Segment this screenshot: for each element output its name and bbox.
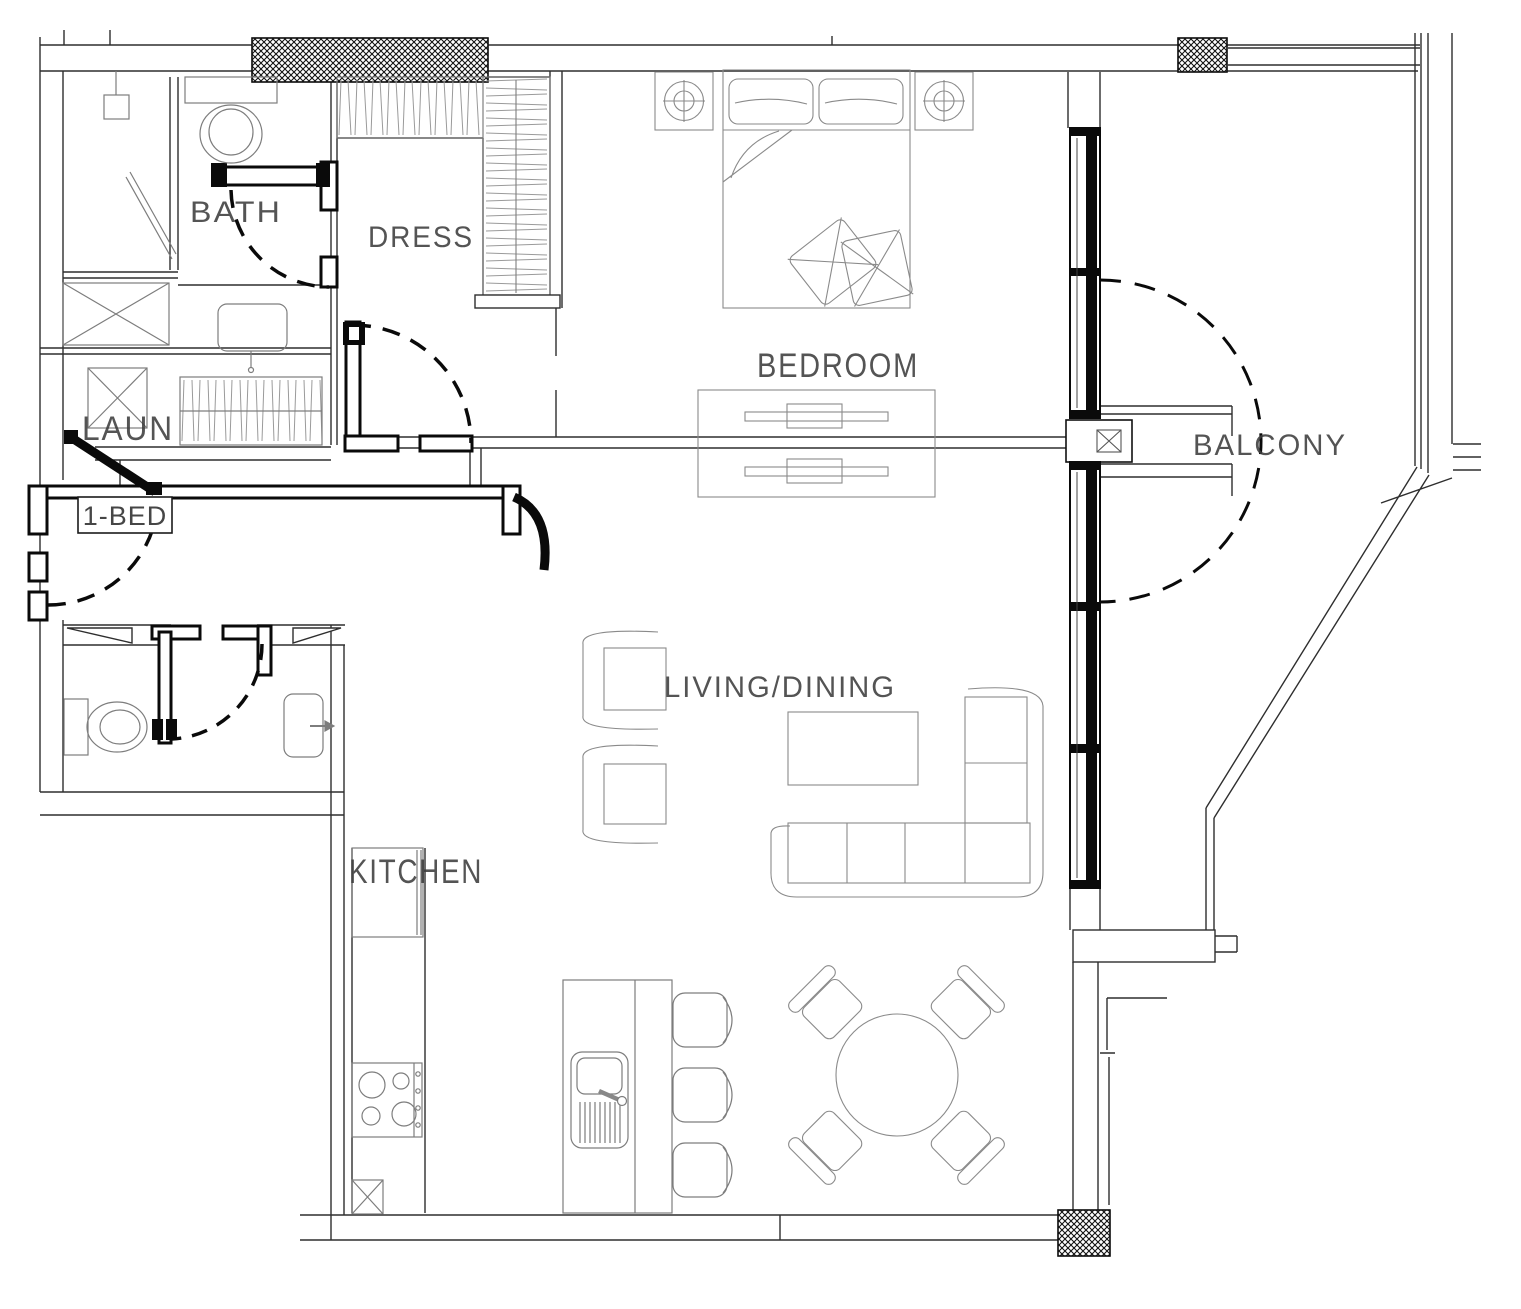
- label-unit-type: 1-BED: [83, 501, 168, 531]
- armchair-top: [583, 631, 666, 729]
- laundry-closet: [180, 377, 322, 445]
- kitchen-island: [563, 980, 672, 1213]
- bedroom-door: [343, 322, 472, 451]
- dining-chair-bl: [786, 1105, 868, 1187]
- armchair-bottom: [583, 745, 666, 843]
- balcony-glass-wall: [1066, 128, 1261, 888]
- kitchen-corner-box: [352, 1180, 383, 1214]
- dining-table: [836, 1014, 958, 1136]
- column-top-left-hatch: [252, 38, 488, 82]
- label-laundry: LAUN: [82, 410, 174, 448]
- wall-step-detail: [1215, 936, 1237, 952]
- column-bottom-right-hatch: [1058, 1210, 1110, 1256]
- window-upper: [1070, 128, 1100, 418]
- closet-wedge-left: [67, 628, 132, 643]
- closet-wedge-right: [293, 628, 341, 643]
- label-living-dining: LIVING/DINING: [664, 671, 896, 704]
- balcony-railing: [1206, 33, 1481, 818]
- room-labels: BATH DRESS LAUN 1-BED BEDROOM BALCONY LI…: [82, 196, 1347, 891]
- wardrobe-end-cap: [475, 295, 560, 308]
- double-bed: [723, 70, 910, 308]
- nightstand-right: [915, 72, 973, 130]
- kitchen-fixtures: [352, 848, 732, 1214]
- label-bedroom: BEDROOM: [757, 347, 919, 385]
- bed-pillow-decor-1: [788, 217, 879, 306]
- powder-room-sink: [284, 694, 334, 757]
- shower-head-box: [104, 95, 129, 119]
- dining-chair-tl: [786, 963, 868, 1045]
- floor-plan: BATH DRESS LAUN 1-BED BEDROOM BALCONY LI…: [0, 0, 1521, 1309]
- l-shaped-sofa: [771, 688, 1043, 897]
- dining-chair-tr: [925, 963, 1007, 1045]
- bed-pillow-decor-2: [841, 229, 913, 306]
- floorplan-canvas: BATH DRESS LAUN 1-BED BEDROOM BALCONY LI…: [0, 0, 1521, 1309]
- window-junction-box: [1066, 420, 1132, 462]
- shower-glass-door: [126, 172, 176, 259]
- dress-wardrobes: [337, 77, 560, 308]
- wardrobe-top-hatch: [337, 77, 483, 138]
- bar-stools: [673, 993, 732, 1197]
- nightstand-left: [655, 72, 713, 130]
- cooktop: [352, 1063, 422, 1137]
- column-top-right-hatch: [1178, 38, 1227, 72]
- label-balcony: BALCONY: [1193, 429, 1347, 462]
- label-dress: DRESS: [368, 221, 474, 254]
- powder-room-door: [152, 626, 271, 743]
- shower-tray: [63, 283, 169, 345]
- wall-step: [1073, 930, 1215, 962]
- toilet-main-bath: [185, 77, 277, 163]
- coffee-table: [788, 712, 918, 785]
- tv-console: [698, 390, 935, 497]
- label-bath: BATH: [190, 196, 282, 229]
- powder-room-fixtures: [64, 694, 334, 757]
- bath-vanity-sink: [218, 304, 287, 373]
- toilet-powder-room: [64, 699, 147, 755]
- bedroom-furniture: [655, 70, 973, 497]
- living-furniture: [583, 631, 1043, 1187]
- label-kitchen: KITCHEN: [349, 853, 483, 891]
- bath-fixtures: [63, 71, 322, 445]
- dining-chair-br: [925, 1105, 1007, 1187]
- window-lower: [1070, 462, 1100, 888]
